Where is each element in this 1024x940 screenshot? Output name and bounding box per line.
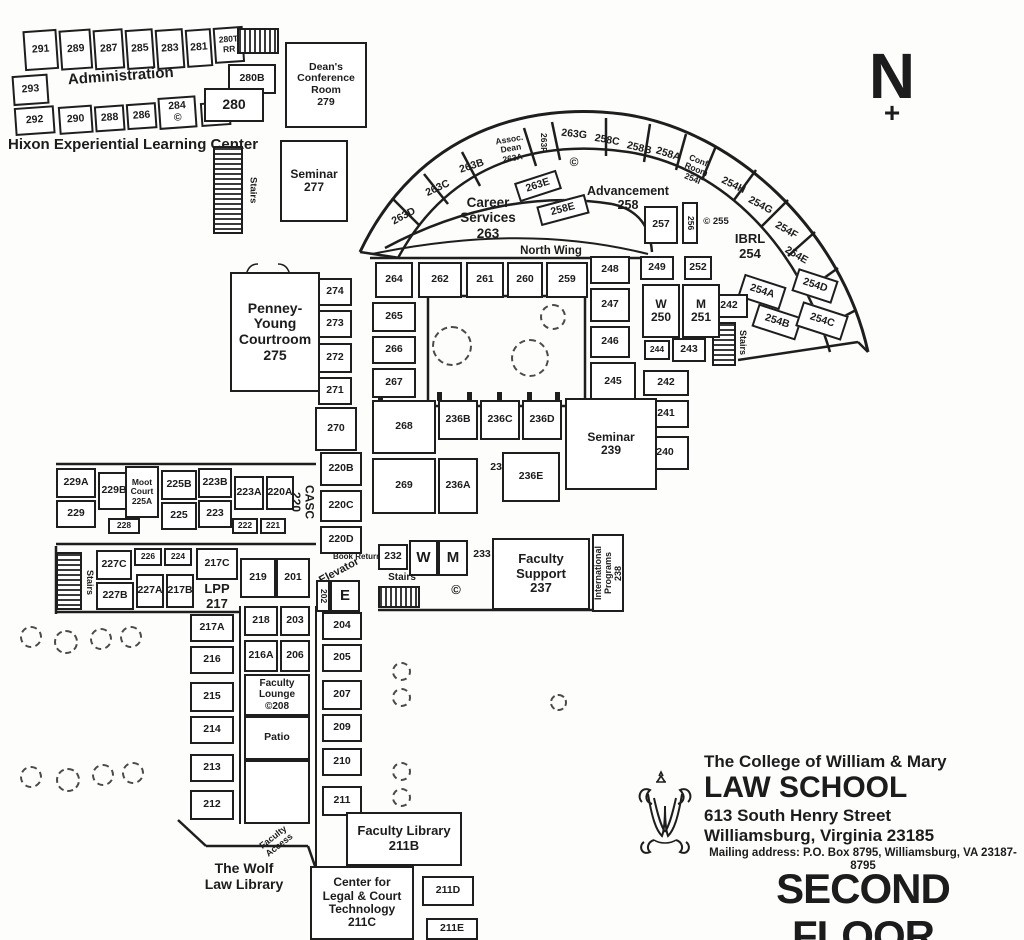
college-name: The College of William & Mary <box>704 752 984 772</box>
stairs-label: Stairs <box>244 152 260 228</box>
room-212: 212 <box>190 790 234 820</box>
north-wing-label: North Wing <box>518 244 584 258</box>
room-243: 243 <box>672 338 706 362</box>
city-address: Williamsburg, Virginia 23185 <box>704 826 1004 846</box>
room-259: 259 <box>546 262 588 298</box>
room-238-international-programs: International Programs 238 <box>592 534 624 612</box>
room-221: 221 <box>260 518 286 534</box>
room-222: 222 <box>232 518 258 534</box>
room-286: 286 <box>126 102 158 130</box>
room-258E: 258E <box>536 194 589 226</box>
room-210: 210 <box>322 748 362 776</box>
room-264: 264 <box>375 262 413 298</box>
room-219: 219 <box>240 558 276 598</box>
room-239-seminar: Seminar 239 <box>565 398 657 490</box>
room-291: 291 <box>22 29 59 71</box>
stairs-hatch <box>378 586 420 608</box>
room-263C: 263C <box>418 173 458 205</box>
room-217B: 217B <box>166 574 194 608</box>
room-271: 271 <box>318 377 352 405</box>
room-226: 226 <box>134 548 162 566</box>
room-289: 289 <box>58 29 93 71</box>
room-237-faculty-support: Faculty Support 237 <box>492 538 590 610</box>
room-232: 232 <box>378 544 408 570</box>
room-249: 249 <box>640 256 674 280</box>
room-214: 214 <box>190 716 234 744</box>
stairs-label: Stairs <box>381 571 423 585</box>
room-207: 207 <box>322 680 362 710</box>
stairs-hatch <box>56 552 82 610</box>
room-280: 280 <box>204 88 264 122</box>
room-254D: 254D <box>791 268 838 304</box>
stairs-label: Stairs <box>736 318 750 368</box>
dotted-circle <box>540 304 566 330</box>
patio-lower-area <box>244 760 310 824</box>
room-213: 213 <box>190 754 234 782</box>
room-211E: 211E <box>426 918 478 940</box>
dotted-circle <box>56 768 80 792</box>
room-215: 215 <box>190 682 234 712</box>
floor-plan-canvas: 291 289 287 285 283 281 280T RR 293 Admi… <box>0 0 1024 940</box>
room-263D: 263D <box>384 201 424 234</box>
stairs-label: Stairs <box>83 556 97 610</box>
room-227A: 227A <box>136 574 164 608</box>
room-236A: 236A <box>438 458 478 514</box>
room-275-courtroom: Penney-Young Courtroom 275 <box>230 272 320 392</box>
room-273: 273 <box>318 310 352 338</box>
room-252: 252 <box>684 256 712 280</box>
stairs-hatch <box>213 146 243 234</box>
dotted-circle <box>432 326 472 366</box>
room-248: 248 <box>590 256 630 284</box>
dotted-circle <box>392 762 411 781</box>
room-229: 229 <box>56 500 96 528</box>
room-225B: 225B <box>161 470 197 500</box>
room-254B: 254B <box>751 303 802 340</box>
room-211B-faculty-library: Faculty Library 211B <box>346 812 462 866</box>
copy-symbol: © <box>566 156 582 170</box>
room-236B: 236B <box>438 400 478 440</box>
copy-symbol: © <box>447 583 465 598</box>
room-284: 284 © <box>157 95 197 130</box>
room-220-casc: CASC 220 <box>288 466 316 538</box>
room-223: 223 <box>198 500 232 528</box>
room-254-ibrl: IBRL 254 <box>728 230 772 264</box>
room-216A: 216A <box>244 640 278 672</box>
room-229A: 229A <box>56 468 96 498</box>
room-236C: 236C <box>480 400 520 440</box>
room-216: 216 <box>190 646 234 674</box>
room-246: 246 <box>590 326 630 358</box>
room-202: 202 <box>316 580 330 612</box>
room-257: 257 <box>644 206 678 244</box>
dotted-circle <box>550 694 567 711</box>
room-227C: 227C <box>96 550 132 580</box>
room-236E: 236E <box>502 452 560 502</box>
room-267: 267 <box>372 368 416 398</box>
room-244: 244 <box>644 340 670 360</box>
street-address: 613 South Henry Street <box>704 806 984 826</box>
wolf-law-library-label: The Wolf Law Library <box>192 856 296 898</box>
room-225: 225 <box>161 502 197 530</box>
dotted-circle <box>120 626 142 648</box>
dotted-circle <box>122 762 144 784</box>
room-211D: 211D <box>422 876 474 906</box>
room-261: 261 <box>466 262 504 298</box>
room-274: 274 <box>318 278 352 306</box>
dotted-circle <box>392 788 411 807</box>
dotted-circle <box>511 339 549 377</box>
room-251-m-restroom: M 251 <box>682 284 720 338</box>
room-260: 260 <box>507 262 543 298</box>
room-e-elevator: E <box>330 580 360 612</box>
room-201: 201 <box>276 558 310 598</box>
room-290: 290 <box>58 105 94 135</box>
room-263A: Assoc. Dean 263A <box>487 127 535 172</box>
room-250-w-restroom: W 250 <box>642 284 680 338</box>
room-218: 218 <box>244 606 278 636</box>
room-263-career-services: Career Services 263 <box>458 196 518 240</box>
dotted-circle <box>90 628 112 650</box>
room-220B: 220B <box>320 452 362 486</box>
room-292: 292 <box>14 105 56 136</box>
room-269: 269 <box>372 458 436 514</box>
room-206: 206 <box>280 640 310 672</box>
room-266: 266 <box>372 336 416 364</box>
room-220C: 220C <box>320 490 362 522</box>
room-279: Dean's Conference Room 279 <box>285 42 367 128</box>
room-236D: 236D <box>522 400 562 440</box>
room-277: Seminar 277 <box>280 140 348 222</box>
patio: Patio <box>244 716 310 760</box>
room-263E: 263E <box>514 170 562 203</box>
room-209: 209 <box>322 714 362 742</box>
room-217-lpp: LPP 217 <box>196 580 238 614</box>
room-223A: 223A <box>234 476 264 510</box>
room-204: 204 <box>322 612 362 640</box>
room-242-b: 242 <box>643 370 689 396</box>
room-225A-moot-court: Moot Court 225A <box>125 466 159 518</box>
room-208-faculty-lounge: Faculty Lounge ©208 <box>244 674 310 716</box>
dotted-circle <box>20 766 42 788</box>
dotted-circle <box>92 764 114 786</box>
room-270: 270 <box>315 407 357 451</box>
room-228: 228 <box>108 518 140 534</box>
room-268: 268 <box>372 400 436 454</box>
room-203: 203 <box>280 606 310 636</box>
compass-plus-icon: + <box>876 98 908 128</box>
dotted-circle <box>54 630 78 654</box>
room-288: 288 <box>94 104 126 132</box>
room-227B: 227B <box>96 582 134 610</box>
dotted-circle <box>20 626 42 648</box>
school-name: LAW SCHOOL <box>704 770 1004 806</box>
room-265: 265 <box>372 302 416 332</box>
dotted-circle <box>392 662 411 681</box>
room-263F: 263F <box>536 124 550 162</box>
dotted-circle <box>392 688 411 707</box>
room-272: 272 <box>318 343 352 373</box>
floor-title: SECOND FLOOR <box>702 886 1024 938</box>
room-211C-clct: Center for Legal & Court Technology 211C <box>310 866 414 940</box>
room-256: 256 <box>682 202 698 244</box>
room-263B: 263B <box>452 153 492 181</box>
room-223B: 223B <box>198 468 232 498</box>
room-254C: 254C <box>795 301 849 341</box>
room-224: 224 <box>164 548 192 566</box>
room-205: 205 <box>322 644 362 672</box>
room-217C: 217C <box>196 548 238 580</box>
room-247: 247 <box>590 288 630 322</box>
stairs-hatch <box>237 28 279 54</box>
room-262: 262 <box>418 262 462 298</box>
room-245: 245 <box>590 362 636 402</box>
m-restroom-south: M <box>438 540 468 576</box>
room-217A: 217A <box>190 614 234 642</box>
wm-cypher-logo <box>634 768 696 860</box>
